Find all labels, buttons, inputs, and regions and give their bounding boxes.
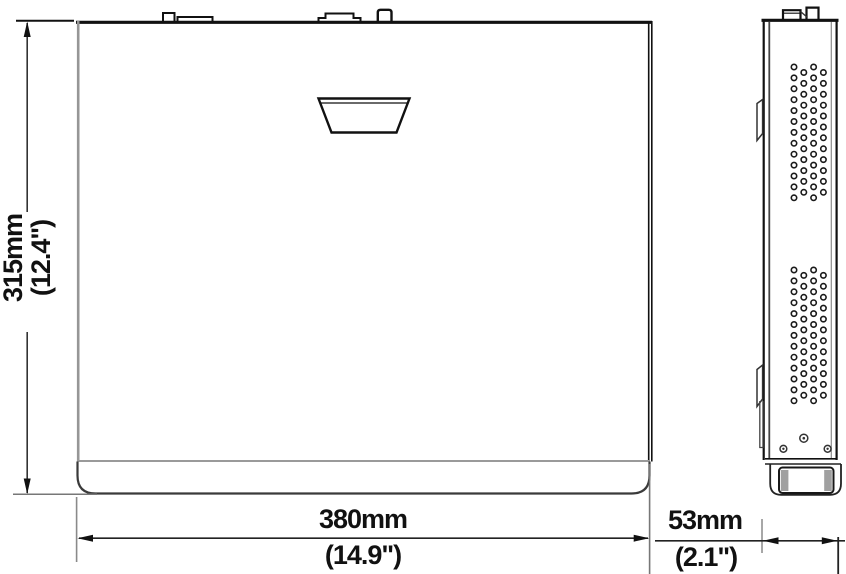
vent-hole bbox=[791, 365, 796, 370]
vent-hole bbox=[811, 398, 816, 403]
line-art bbox=[0, 0, 846, 574]
vent-hole bbox=[791, 97, 796, 102]
vent-hole bbox=[801, 284, 806, 289]
width-imperial-label: (14.9") bbox=[238, 541, 488, 569]
foot-bracket bbox=[765, 464, 841, 495]
vent-hole bbox=[821, 124, 826, 129]
vent-hole bbox=[791, 195, 796, 200]
vent-hole bbox=[791, 162, 796, 167]
vent-hole bbox=[791, 152, 796, 157]
vent-hole bbox=[801, 124, 806, 129]
vent-hole bbox=[791, 300, 796, 305]
vent-hole bbox=[821, 113, 826, 118]
vent-hole bbox=[821, 295, 826, 300]
vent-hole bbox=[821, 103, 826, 108]
vent-hole bbox=[801, 103, 806, 108]
mounting-tab-2 bbox=[757, 365, 763, 407]
vent-hole bbox=[801, 382, 806, 387]
vent-hole bbox=[801, 305, 806, 310]
vent-hole bbox=[791, 173, 796, 178]
vent-hole bbox=[811, 355, 816, 360]
vent-hole bbox=[791, 355, 796, 360]
rear-connector-3 bbox=[319, 14, 361, 22]
vent-hole bbox=[811, 173, 816, 178]
front-panel bbox=[78, 462, 650, 494]
vent-hole bbox=[801, 360, 806, 365]
vent-holes-lower bbox=[791, 267, 826, 403]
vent-hole bbox=[821, 168, 826, 173]
arrow-down-icon bbox=[24, 479, 31, 495]
depth-imperial-label: (2.1") bbox=[650, 543, 762, 571]
screw-2-center bbox=[782, 448, 784, 450]
vent-hole bbox=[801, 338, 806, 343]
side-connector-2 bbox=[807, 8, 819, 20]
vent-hole bbox=[801, 349, 806, 354]
vent-hole bbox=[801, 393, 806, 398]
vent-hole bbox=[821, 135, 826, 140]
vent-hole bbox=[821, 382, 826, 387]
vent-hole bbox=[811, 130, 816, 135]
vent-hole bbox=[821, 360, 826, 365]
vent-hole bbox=[821, 393, 826, 398]
vent-hole bbox=[811, 333, 816, 338]
vent-hole bbox=[821, 349, 826, 354]
vent-hole bbox=[821, 284, 826, 289]
vent-hole bbox=[791, 289, 796, 294]
side-view-body bbox=[762, 19, 839, 460]
vent-hole bbox=[821, 371, 826, 376]
vent-hole bbox=[801, 113, 806, 118]
vent-hole bbox=[801, 70, 806, 75]
vent-hole bbox=[811, 289, 816, 294]
vent-hole bbox=[801, 190, 806, 195]
depth-arrow-left-icon bbox=[763, 537, 779, 544]
vent-hole bbox=[791, 311, 796, 316]
screws bbox=[780, 434, 831, 452]
mounting-tab-1 bbox=[757, 100, 763, 141]
vent-hole bbox=[811, 267, 816, 272]
vent-hole bbox=[811, 184, 816, 189]
vent-hole bbox=[821, 81, 826, 86]
vent-hole bbox=[791, 64, 796, 69]
vent-hole bbox=[791, 376, 796, 381]
vent-hole bbox=[821, 179, 826, 184]
vent-hole bbox=[821, 190, 826, 195]
vent-hole bbox=[821, 327, 826, 332]
mounting-tab-3 bbox=[760, 401, 763, 448]
vent-hole bbox=[811, 152, 816, 157]
vent-hole bbox=[791, 184, 796, 189]
vent-hole bbox=[791, 322, 796, 327]
vent-hole bbox=[821, 316, 826, 321]
vent-hole bbox=[801, 179, 806, 184]
screw-1-center bbox=[803, 437, 806, 440]
vent-hole bbox=[811, 195, 816, 200]
vent-hole bbox=[801, 327, 806, 332]
vent-hole bbox=[791, 130, 796, 135]
foot-pad-left-bar bbox=[781, 470, 789, 491]
vent-hole bbox=[791, 344, 796, 349]
vent-hole bbox=[811, 108, 816, 113]
depth-metric-label: 53mm bbox=[650, 506, 760, 534]
rear-connector-1 bbox=[163, 13, 175, 22]
vent-hole bbox=[791, 398, 796, 403]
width-metric-label: 380mm bbox=[238, 505, 488, 533]
rear-connectors-side-view bbox=[783, 8, 819, 20]
vent-hole bbox=[821, 92, 826, 97]
rear-connectors-top-view bbox=[163, 10, 392, 22]
vent-hole bbox=[791, 75, 796, 80]
vent-hole bbox=[801, 316, 806, 321]
mounting-tabs bbox=[757, 100, 763, 448]
vent-hole bbox=[791, 141, 796, 146]
vent-hole bbox=[811, 376, 816, 381]
vent-hole bbox=[801, 273, 806, 278]
vent-hole bbox=[811, 344, 816, 349]
side-view bbox=[757, 8, 841, 495]
handle-recess bbox=[319, 99, 410, 133]
foot-pad-right-bar bbox=[824, 470, 832, 491]
vent-hole bbox=[791, 119, 796, 124]
dimension-diagram: 315mm (12.4") 380mm (14.9") 53mm (2.1") bbox=[0, 0, 846, 574]
vent-hole bbox=[811, 162, 816, 167]
vent-hole bbox=[811, 119, 816, 124]
screw-3-center bbox=[826, 448, 828, 450]
top-view-body bbox=[76, 21, 652, 462]
arrow-left-icon bbox=[78, 535, 94, 542]
vent-hole bbox=[811, 75, 816, 80]
vent-hole bbox=[801, 135, 806, 140]
vent-hole bbox=[791, 387, 796, 392]
vent-hole bbox=[811, 322, 816, 327]
vent-hole bbox=[791, 267, 796, 272]
vent-hole bbox=[791, 278, 796, 283]
vent-hole bbox=[811, 387, 816, 392]
vent-hole bbox=[791, 108, 796, 113]
vent-hole bbox=[801, 295, 806, 300]
vent-hole bbox=[811, 311, 816, 316]
vent-holes-upper bbox=[791, 64, 826, 200]
vent-hole bbox=[801, 168, 806, 173]
depth-arrow-right-icon bbox=[822, 537, 838, 544]
vent-hole bbox=[821, 70, 826, 75]
top-view bbox=[76, 10, 652, 494]
vent-hole bbox=[791, 86, 796, 91]
vent-hole bbox=[821, 273, 826, 278]
vent-hole bbox=[811, 86, 816, 91]
vent-hole bbox=[811, 300, 816, 305]
vent-hole bbox=[801, 81, 806, 86]
vent-hole bbox=[801, 92, 806, 97]
arrow-right-icon bbox=[634, 535, 650, 542]
vent-hole bbox=[811, 278, 816, 283]
vent-hole bbox=[811, 97, 816, 102]
vent-hole bbox=[811, 141, 816, 146]
height-imperial-label: (12.4") bbox=[27, 187, 55, 329]
rear-connector-4 bbox=[378, 10, 392, 22]
height-metric-label: 315mm bbox=[0, 187, 27, 329]
vent-hole bbox=[801, 157, 806, 162]
vent-hole bbox=[791, 333, 796, 338]
vent-hole bbox=[821, 305, 826, 310]
vent-hole bbox=[821, 146, 826, 151]
arrow-up-icon bbox=[24, 22, 31, 38]
vent-hole bbox=[821, 338, 826, 343]
vent-hole bbox=[811, 365, 816, 370]
side-connector-1 bbox=[783, 10, 801, 19]
vent-hole bbox=[821, 157, 826, 162]
height-dimension-label: 315mm (12.4") bbox=[0, 187, 57, 329]
vent-hole bbox=[801, 371, 806, 376]
vent-hole bbox=[811, 64, 816, 69]
vent-hole bbox=[801, 146, 806, 151]
